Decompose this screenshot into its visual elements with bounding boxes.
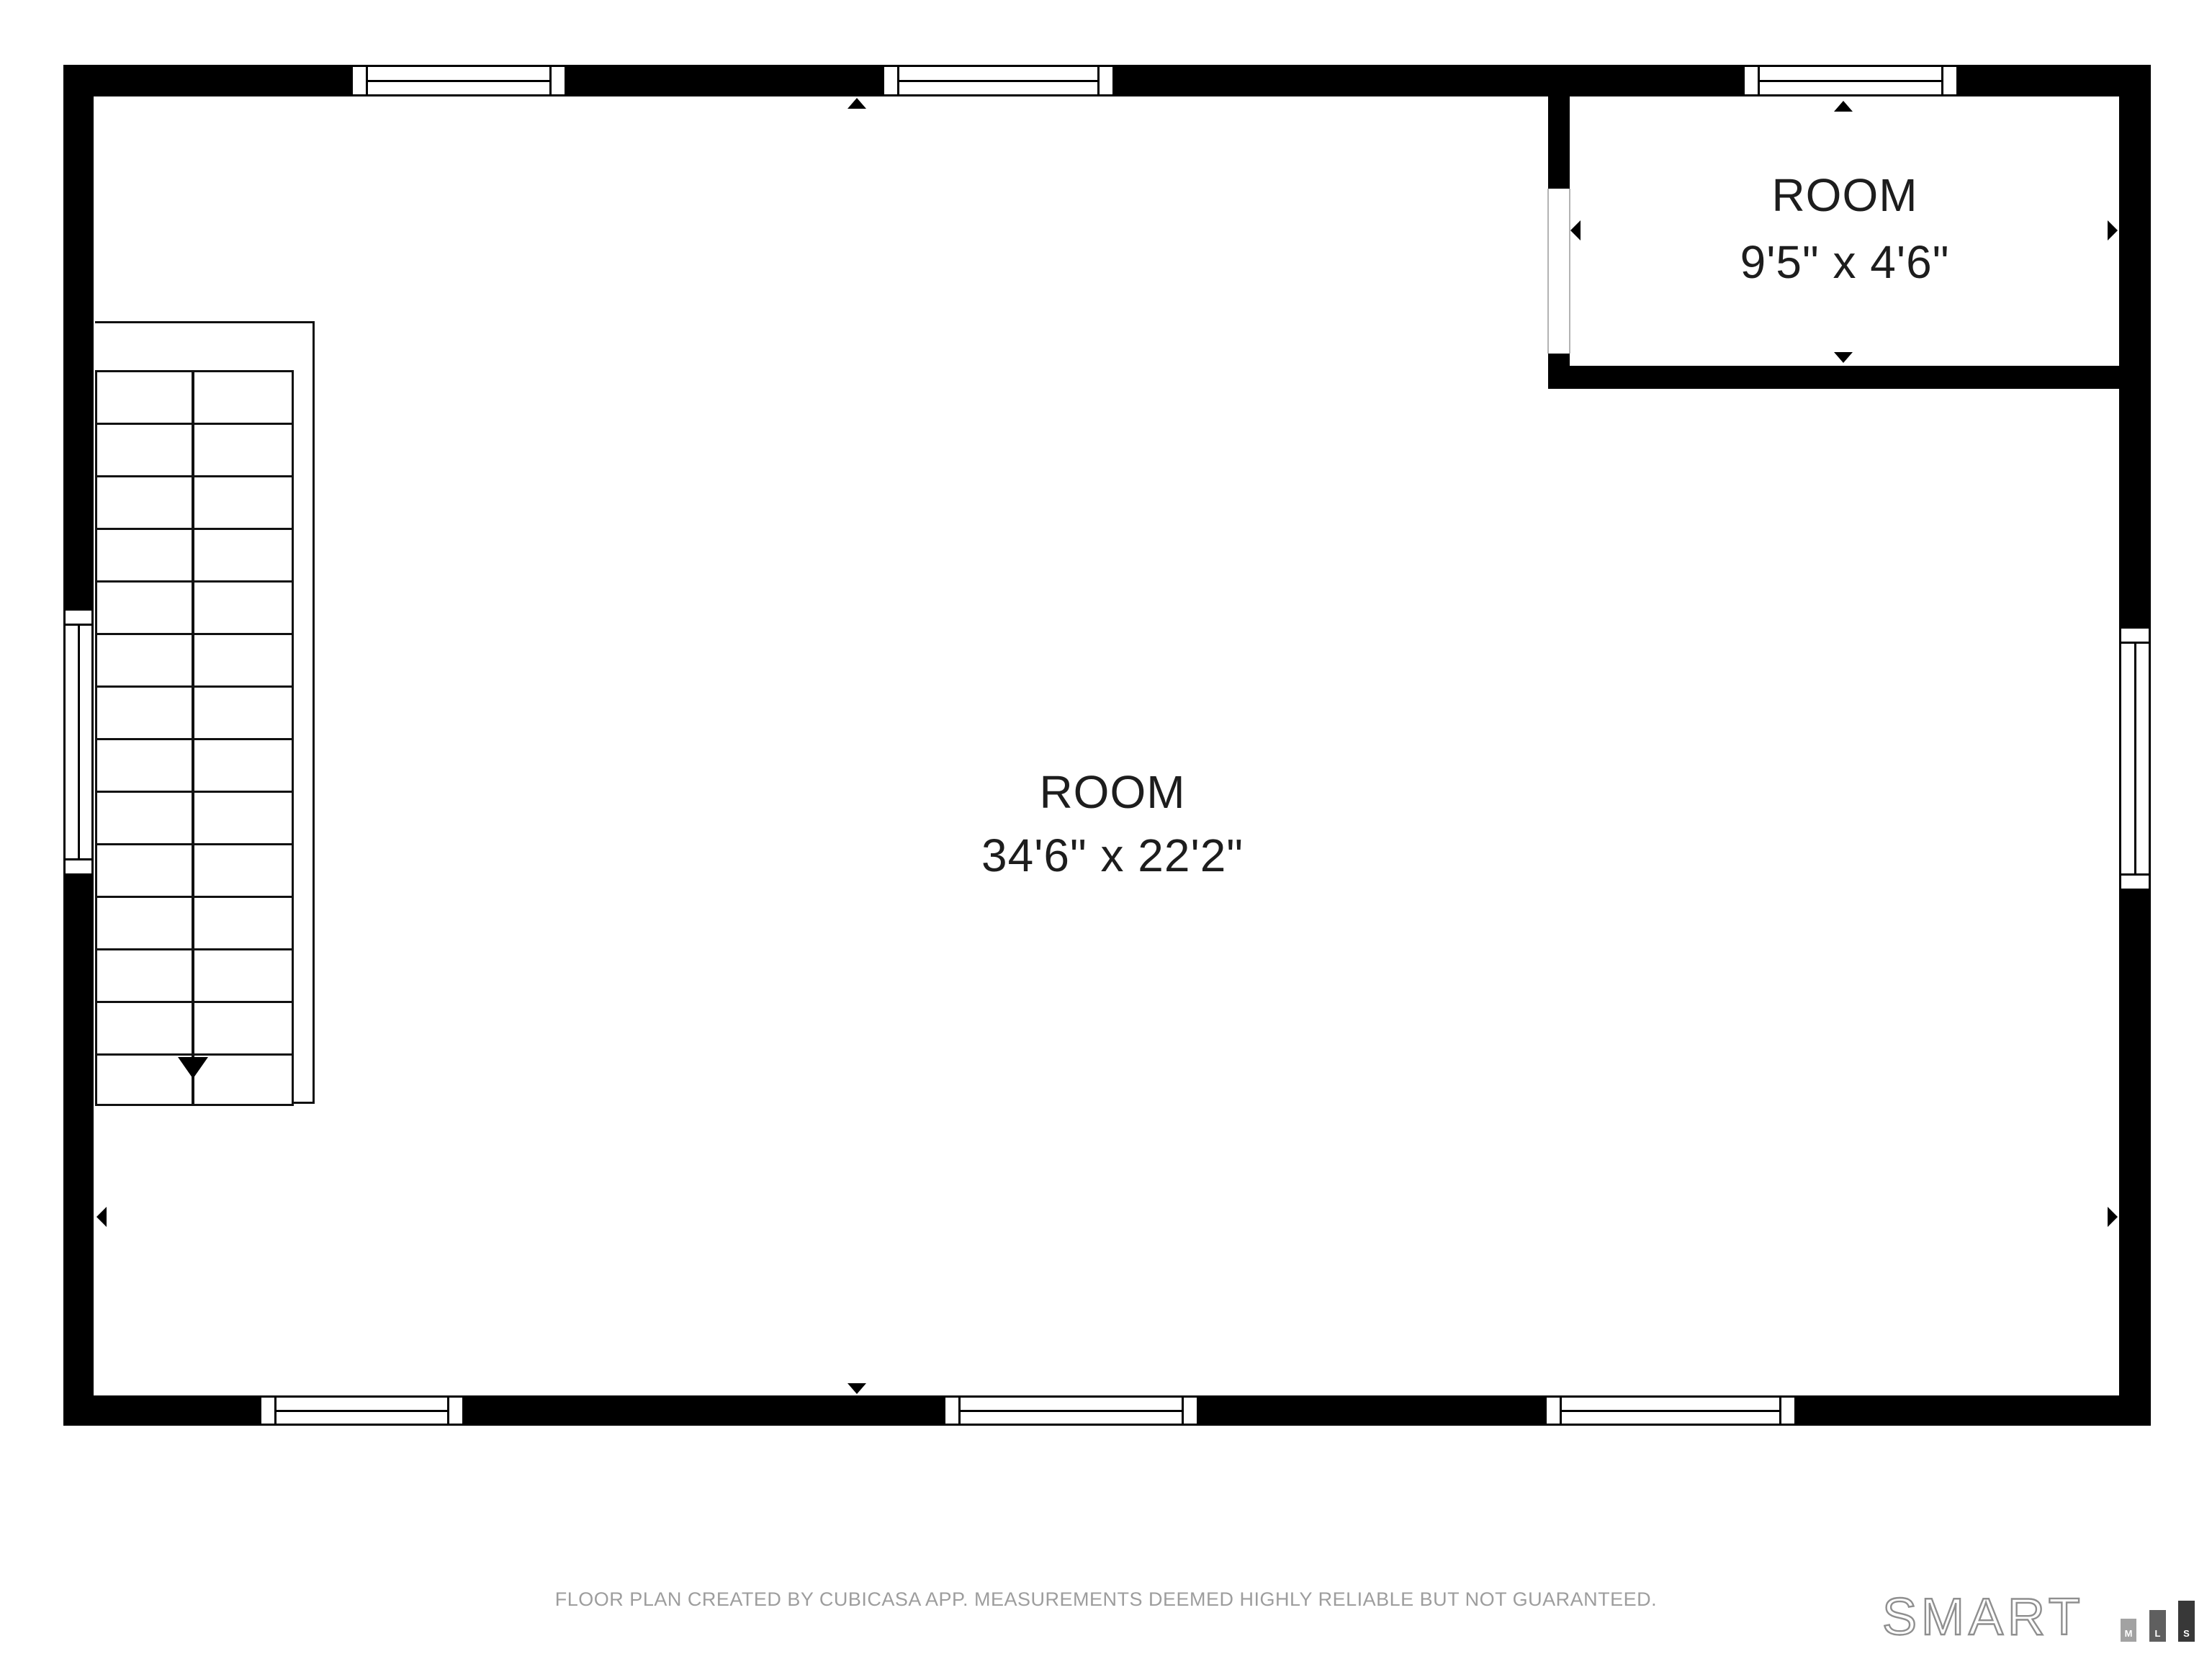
small-room-dimensions: 9'5" x 4'6" — [1593, 233, 2097, 291]
mls-bar-l: L — [2149, 1610, 2166, 1642]
mls-bar-m-label: M — [2125, 1628, 2133, 1639]
smallroom-arrow-left-icon — [1570, 220, 1581, 240]
stairs-boundary-right — [313, 321, 315, 1104]
window-top-1 — [351, 65, 567, 96]
window-bottom-1 — [259, 1395, 464, 1426]
stairs-center-line — [192, 370, 194, 1106]
smart-logo: SMART — [1881, 1593, 2118, 1645]
wall-smallroom-left-upper — [1548, 96, 1570, 189]
arrow-right-icon — [2108, 1207, 2118, 1227]
window-right — [2119, 626, 2151, 891]
stairs-boundary-bottom — [294, 1102, 315, 1104]
window-left — [63, 608, 94, 876]
main-room-name: ROOM — [860, 763, 1364, 821]
mls-bar-s: S — [2178, 1601, 2195, 1642]
smallroom-arrow-up-icon — [1834, 101, 1853, 112]
mls-bar-m: M — [2121, 1619, 2136, 1642]
mls-bar-l-label: L — [2155, 1628, 2161, 1639]
smallroom-arrow-down-icon — [1834, 352, 1853, 363]
arrow-up-icon — [848, 98, 866, 109]
mls-bar-s-label: S — [2183, 1628, 2190, 1639]
stairs-down-arrow-icon — [178, 1057, 208, 1079]
smallroom-arrow-right-icon — [2108, 220, 2118, 240]
window-bottom-3 — [1545, 1395, 1797, 1426]
floor-plan-page: ROOM 34'6" x 22'2" ROOM 9'5" x 4'6" FLOO… — [0, 0, 2212, 1659]
stairs-boundary-top — [95, 321, 315, 323]
wall-smallroom-bottom — [1548, 366, 2151, 389]
arrow-left-icon — [96, 1207, 107, 1227]
smart-wordmark: SMART — [1882, 1593, 2085, 1645]
window-top-2 — [882, 65, 1115, 96]
opening-jamb-right — [1569, 189, 1570, 354]
small-room-name: ROOM — [1593, 166, 2097, 224]
arrow-down-icon — [848, 1383, 866, 1394]
stairs-steps — [95, 370, 294, 1106]
window-bottom-2 — [943, 1395, 1199, 1426]
opening-jamb-left — [1547, 189, 1549, 354]
window-top-smallroom — [1743, 65, 1959, 96]
main-room-dimensions: 34'6" x 22'2" — [860, 827, 1364, 884]
